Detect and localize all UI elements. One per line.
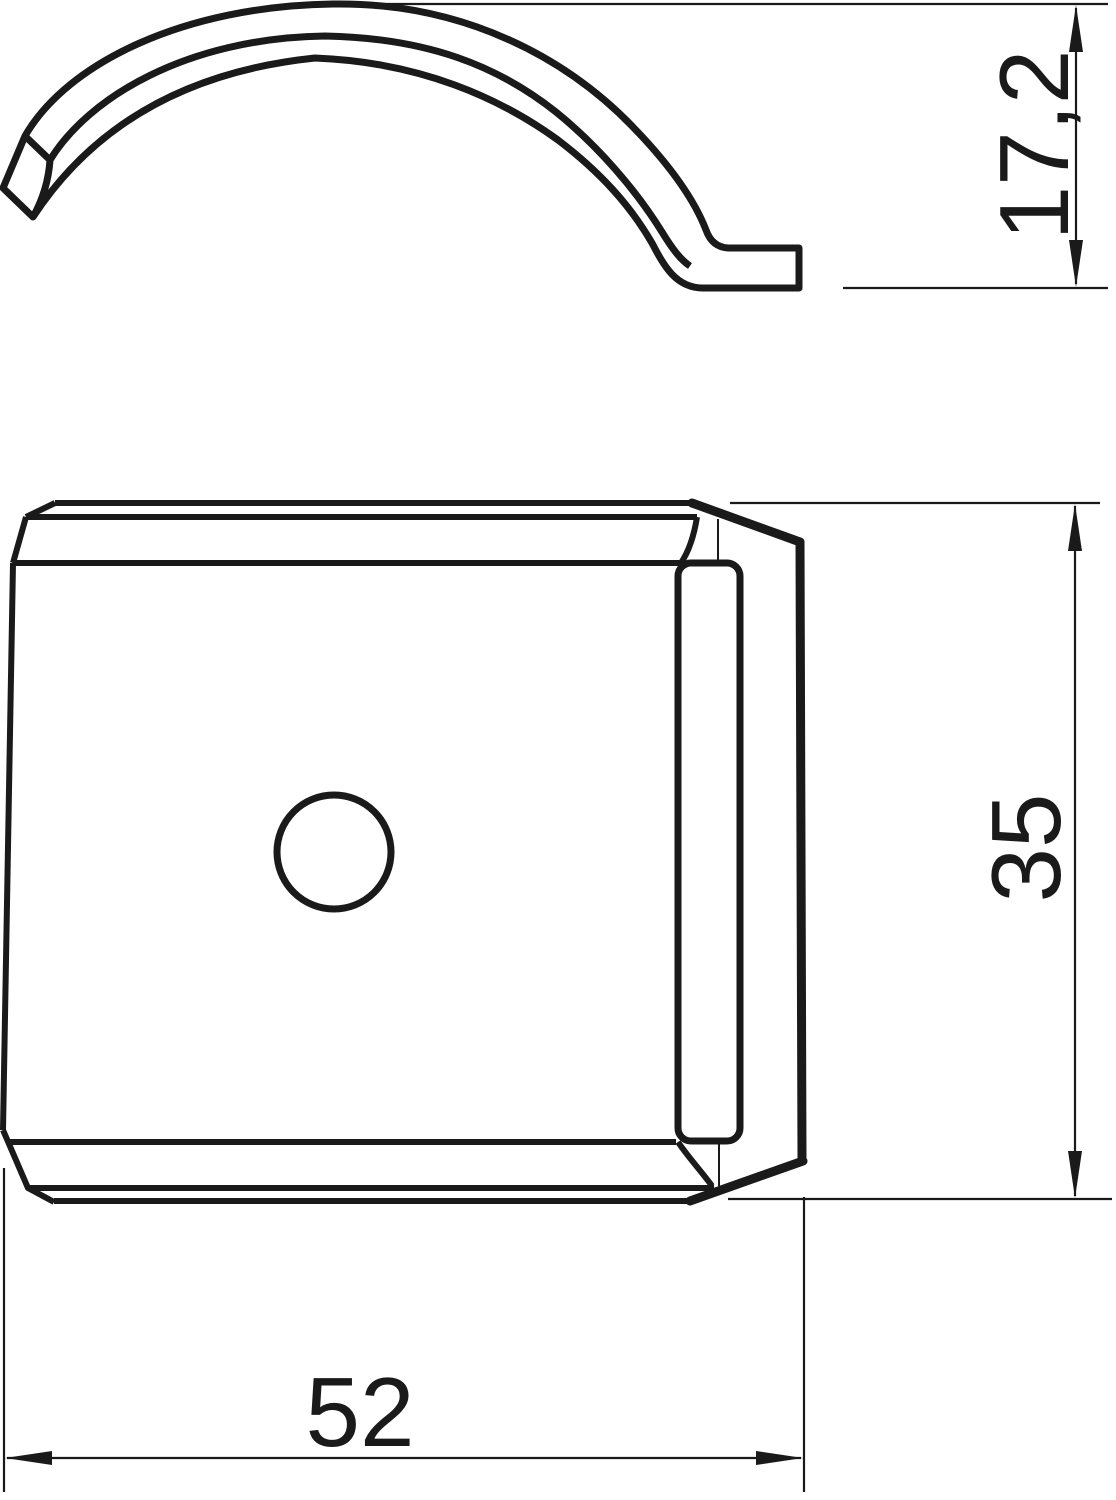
clip-side-view — [3, 4, 799, 288]
mounting-hole — [277, 795, 391, 909]
top-right-face-edge — [692, 503, 800, 542]
dimension-35: 35 — [728, 503, 1112, 1199]
dimension-value-17-2: 17,2 — [979, 50, 1089, 241]
arrowhead-up — [1068, 504, 1082, 551]
right-clamp-band — [678, 563, 740, 1141]
dimension-value-35: 35 — [971, 793, 1081, 902]
arrowhead-up — [1069, 5, 1083, 52]
right-face-edge — [800, 542, 802, 1161]
arrowhead-down — [1069, 240, 1083, 287]
arrowhead-down — [1068, 1151, 1082, 1198]
drawing-sheet: 17,2 — [0, 0, 1116, 1500]
left-edge — [3, 563, 13, 1130]
clamp-front-view — [3, 503, 803, 1202]
technical-drawing-canvas: 17,2 — [0, 0, 1116, 1500]
bottom-right-corner-curve — [678, 1142, 712, 1186]
top-right-corner-curve — [681, 517, 697, 563]
arrowhead-right — [756, 1451, 803, 1465]
clip-inner-edge — [50, 36, 690, 266]
dimension-value-52: 52 — [305, 1357, 414, 1467]
arrowhead-left — [5, 1451, 52, 1465]
dimension-52: 52 — [4, 1168, 804, 1492]
clip-end-face — [25, 136, 50, 217]
top-left-chamfer — [13, 517, 26, 563]
